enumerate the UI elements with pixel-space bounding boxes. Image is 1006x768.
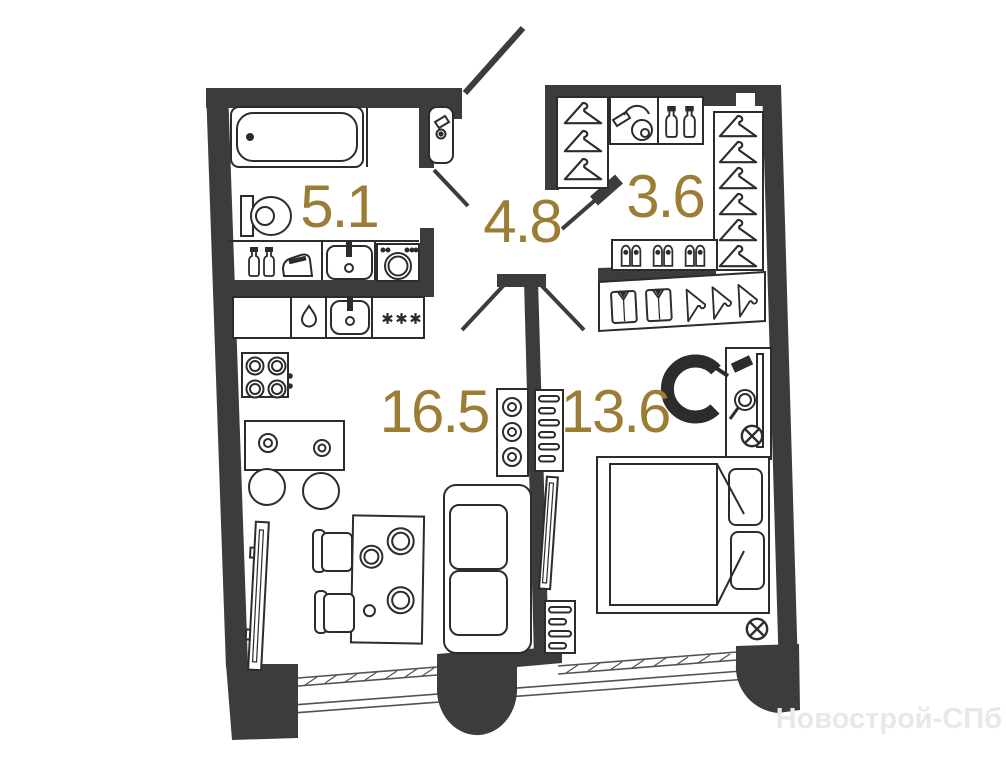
radiator-icon [535, 390, 563, 471]
vacuum-cleaner-icon [610, 97, 658, 144]
stool-icon [249, 469, 285, 505]
area-label-bathroom: 5.1 [300, 177, 377, 237]
double-bed-icon [597, 457, 769, 613]
bottles-icon [658, 97, 703, 144]
hob-icon [383, 313, 420, 324]
outlet-icon [747, 619, 767, 639]
area-label-wardrobe: 3.6 [626, 167, 703, 227]
closet-shelf-icon [599, 272, 765, 331]
vanity-table-icon [726, 348, 771, 459]
corner-basin-icon [429, 107, 453, 163]
counter [233, 297, 424, 338]
dining-table-icon [351, 515, 424, 643]
bedroom-door-swing [541, 285, 584, 330]
watermark: Новострой-СПб [776, 703, 1002, 736]
shoes-icon [612, 240, 717, 270]
wall-shelf-icon [497, 389, 528, 476]
entrance-door-swing [465, 28, 523, 93]
area-label-living-kitchen: 16.5 [380, 382, 489, 442]
shirt-icon [646, 289, 672, 321]
washing-machine-icon [377, 244, 419, 281]
outlet-icon [742, 426, 762, 446]
chair-icon [313, 530, 352, 572]
kitchen-fixtures [233, 297, 531, 670]
floor-plan: 5.1 4.8 3.6 16.5 13.6 Новострой-СПб [0, 0, 1006, 768]
hanger-rack [714, 112, 763, 270]
area-label-hallway: 4.8 [483, 192, 560, 252]
kitchen-sink-icon [331, 297, 369, 334]
shirt-icon [611, 291, 637, 323]
toilet-icon [241, 196, 291, 236]
living-door-swing [462, 285, 504, 330]
bottles-icon [249, 248, 274, 276]
area-label-bedroom: 13.6 [561, 382, 670, 442]
sofa-icon [444, 485, 531, 653]
wardrobe-door-swing [562, 189, 608, 229]
shelf-icon [245, 421, 344, 470]
floor-plan-canvas [0, 0, 1006, 768]
pillow-icon [731, 532, 764, 589]
iron-icon [283, 255, 312, 276]
hanger-rack [557, 97, 608, 188]
chair-icon [315, 591, 354, 633]
tv-icon [244, 522, 269, 671]
bathtub-icon [231, 107, 363, 167]
radiator-icon [545, 601, 575, 653]
bathroom-door-swing [434, 170, 468, 206]
bedroom-fixtures [535, 272, 771, 653]
washbasin-icon [327, 242, 372, 279]
armchair-icon [667, 361, 728, 417]
stool-icon [303, 473, 339, 509]
stove-icon [242, 353, 292, 398]
